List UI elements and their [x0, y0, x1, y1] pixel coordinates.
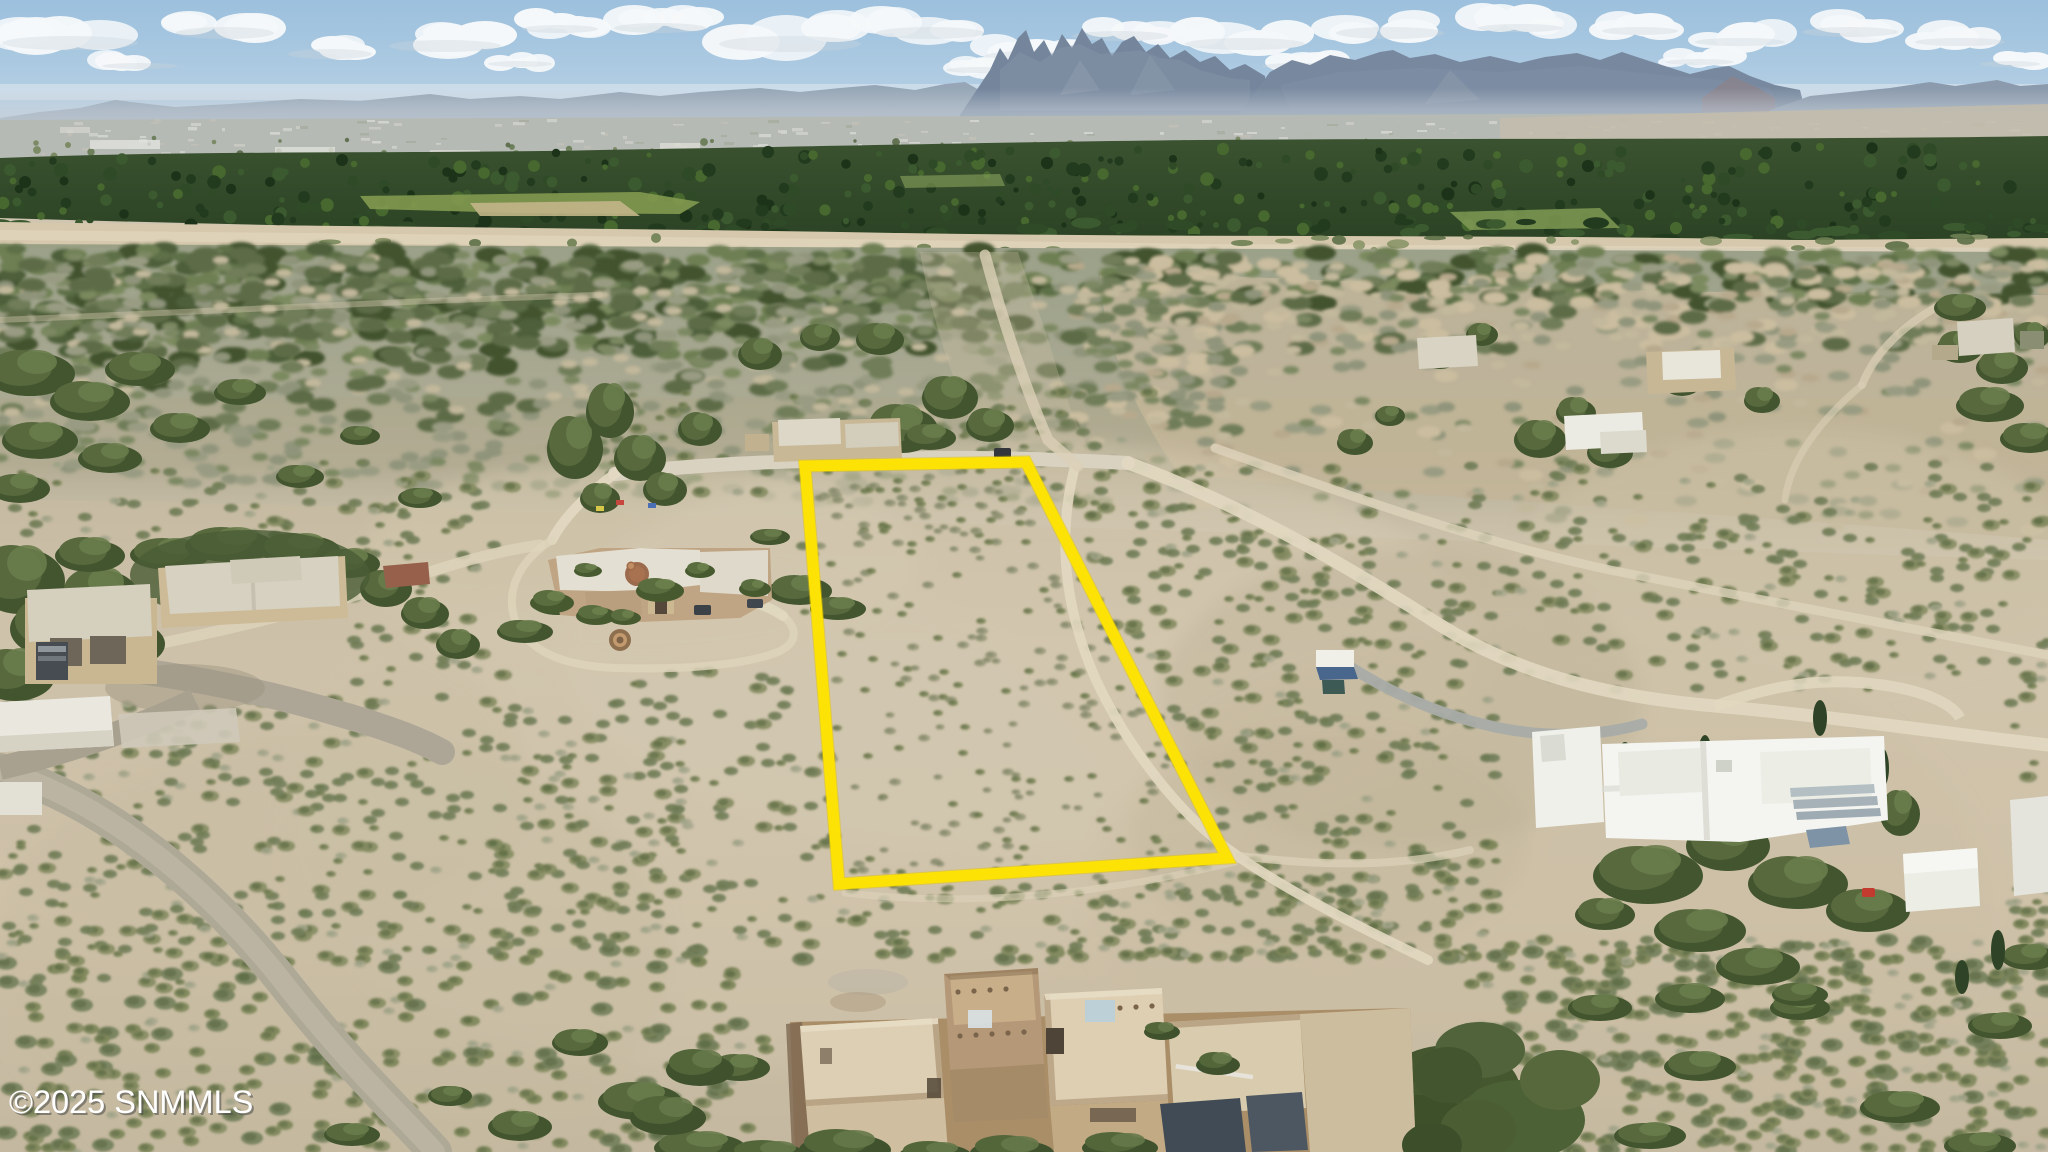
svg-text:©2025 SNMMLS: ©2025 SNMMLS: [9, 1084, 253, 1120]
